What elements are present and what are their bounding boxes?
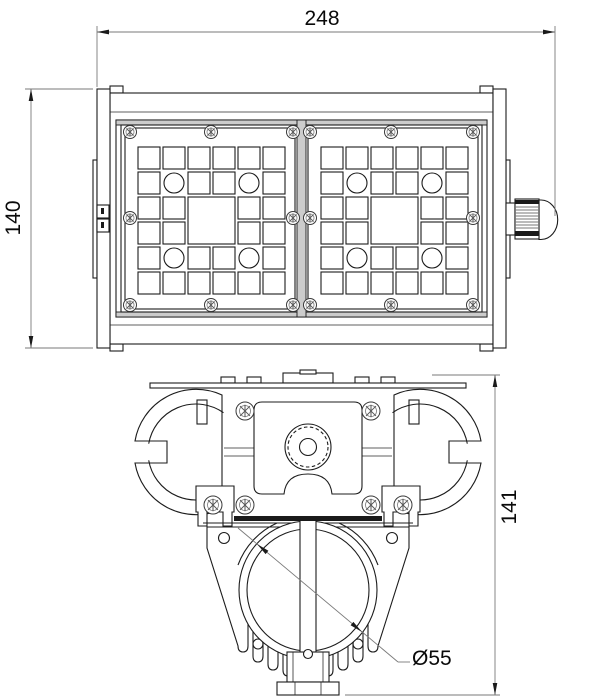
gland-flange [506,203,515,235]
center-boss-hole [300,439,317,456]
screw-icon [124,212,137,225]
corner-step [110,86,123,93]
screw-icon [362,496,380,514]
dimension-overall-height: 140 [2,89,93,348]
rail-tab [247,377,261,383]
screw-icon [124,299,137,312]
dim-section-height-text: 141 [498,489,521,524]
screw-icon [205,299,218,312]
left-hinge-plate [93,160,97,278]
drawing-canvas: 248 140 141 Ø55 [0,0,603,700]
cable-gland [506,199,558,240]
screw-icon [236,496,254,514]
driver-plate [254,402,362,494]
rail-bar [150,383,466,388]
rail-tab [355,377,369,383]
screw-icon [385,299,398,312]
right-end-cap [493,89,506,348]
screw-icon [205,126,218,139]
screw-icon [394,496,412,514]
corner-step [110,344,123,351]
screw-icon [287,126,300,139]
bottom-nut [277,682,339,695]
dim-width-text: 248 [304,7,339,30]
left-latch [97,205,109,232]
screw-icon [467,126,480,139]
rail-tab [221,377,235,383]
screw-icon [304,212,317,225]
screw-icon [362,402,380,420]
screw-icon [467,299,480,312]
front-view [93,86,558,351]
screw-icon [304,126,317,139]
rail-tab [381,377,395,383]
corner-step [480,344,493,351]
technical-drawing: 248 140 141 Ø55 [0,0,603,700]
screw-icon [287,212,300,225]
screw-icon [124,126,137,139]
screw-icon [385,126,398,139]
corner-step [480,86,493,93]
screw-icon [287,299,300,312]
screw-icon [204,496,222,514]
rail-center-bump [300,370,316,374]
dim-height-text: 140 [2,200,25,235]
dim-diameter-text: Ø55 [412,647,452,670]
mounting-rail [150,370,466,388]
gasket-bar [234,516,382,521]
screw-icon [236,402,254,420]
screw-icon [467,212,480,225]
screw-icon [304,299,317,312]
